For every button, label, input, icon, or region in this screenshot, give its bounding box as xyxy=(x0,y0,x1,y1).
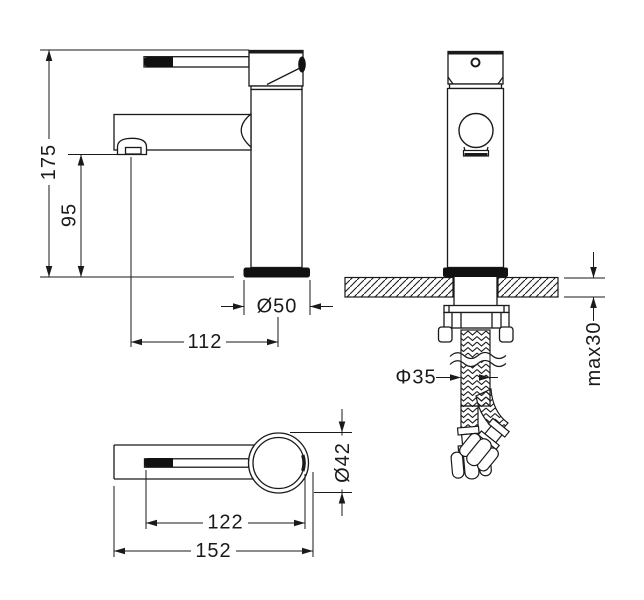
arrowhead-up xyxy=(46,50,53,61)
arrowhead-down xyxy=(339,422,346,433)
arrowhead-left xyxy=(131,339,142,346)
arrowhead-up xyxy=(78,155,85,166)
dim-overall-length-label: 152 xyxy=(195,540,231,562)
arrowhead-up xyxy=(590,297,597,308)
hose-left-lower xyxy=(461,406,478,428)
front-view xyxy=(345,52,558,481)
technical-drawing-canvas: 175 95 112 Ø50 xyxy=(0,0,644,600)
mounting-nut xyxy=(444,313,509,329)
pivot-crescent xyxy=(303,455,304,471)
handle-grip-top xyxy=(145,458,174,468)
dim-body-diameter-label: Ø42 xyxy=(332,442,354,483)
dim-spout-height-label: 95 xyxy=(59,203,81,227)
nut-tab-left xyxy=(439,327,453,342)
dimension-spout-height: 95 xyxy=(59,155,123,278)
countertop-right xyxy=(498,278,558,298)
countertop-left xyxy=(345,278,453,298)
spout-ball xyxy=(459,114,493,148)
arrowhead-down xyxy=(46,266,53,277)
arrowhead-right xyxy=(267,339,278,346)
faucet-technical-drawing: 175 95 112 Ø50 xyxy=(0,0,644,600)
mounting-washer xyxy=(444,306,509,313)
neck-ring-front xyxy=(450,84,502,89)
arrowhead-left xyxy=(146,520,157,527)
nut-tab-right xyxy=(500,327,514,342)
arrowhead-right xyxy=(450,374,461,381)
dim-total-height-label: 175 xyxy=(38,144,60,180)
handle-grip xyxy=(144,57,173,67)
top-view xyxy=(114,433,309,493)
arrowhead-left xyxy=(114,548,125,555)
hose-break-mask xyxy=(450,357,506,363)
dim-max-counter-thickness-label: max30 xyxy=(583,321,605,386)
body-inner-circle xyxy=(253,438,304,489)
dim-base-diameter-label: Ø50 xyxy=(257,296,298,318)
dimension-total-height: 175 xyxy=(38,50,60,277)
dim-spout-reach-label: 112 xyxy=(188,331,223,353)
faucet-body-column xyxy=(251,90,302,268)
dimension-base-diameter: Ø50 xyxy=(221,280,333,318)
arrowhead-left xyxy=(310,303,321,310)
arrowhead-down xyxy=(78,266,85,277)
supply-hoses xyxy=(449,330,515,481)
arrowhead-down xyxy=(590,267,597,278)
handle-pivot-pin xyxy=(298,57,306,73)
dimension-max-counter-thickness: max30 xyxy=(564,252,605,387)
arrowhead-right xyxy=(233,303,244,310)
dim-handle-length-label: 122 xyxy=(207,512,243,534)
aerator-outlet xyxy=(126,148,142,155)
dim-mount-hole-diameter-label: Φ35 xyxy=(395,367,436,389)
base-gasket-side xyxy=(244,268,311,278)
cap-index-hole xyxy=(472,59,480,67)
base-gasket-front xyxy=(443,268,508,278)
handle-cap xyxy=(448,52,503,85)
arrowhead-up xyxy=(339,493,346,504)
arrowhead-right xyxy=(302,548,313,555)
arrowhead-right xyxy=(294,520,305,527)
